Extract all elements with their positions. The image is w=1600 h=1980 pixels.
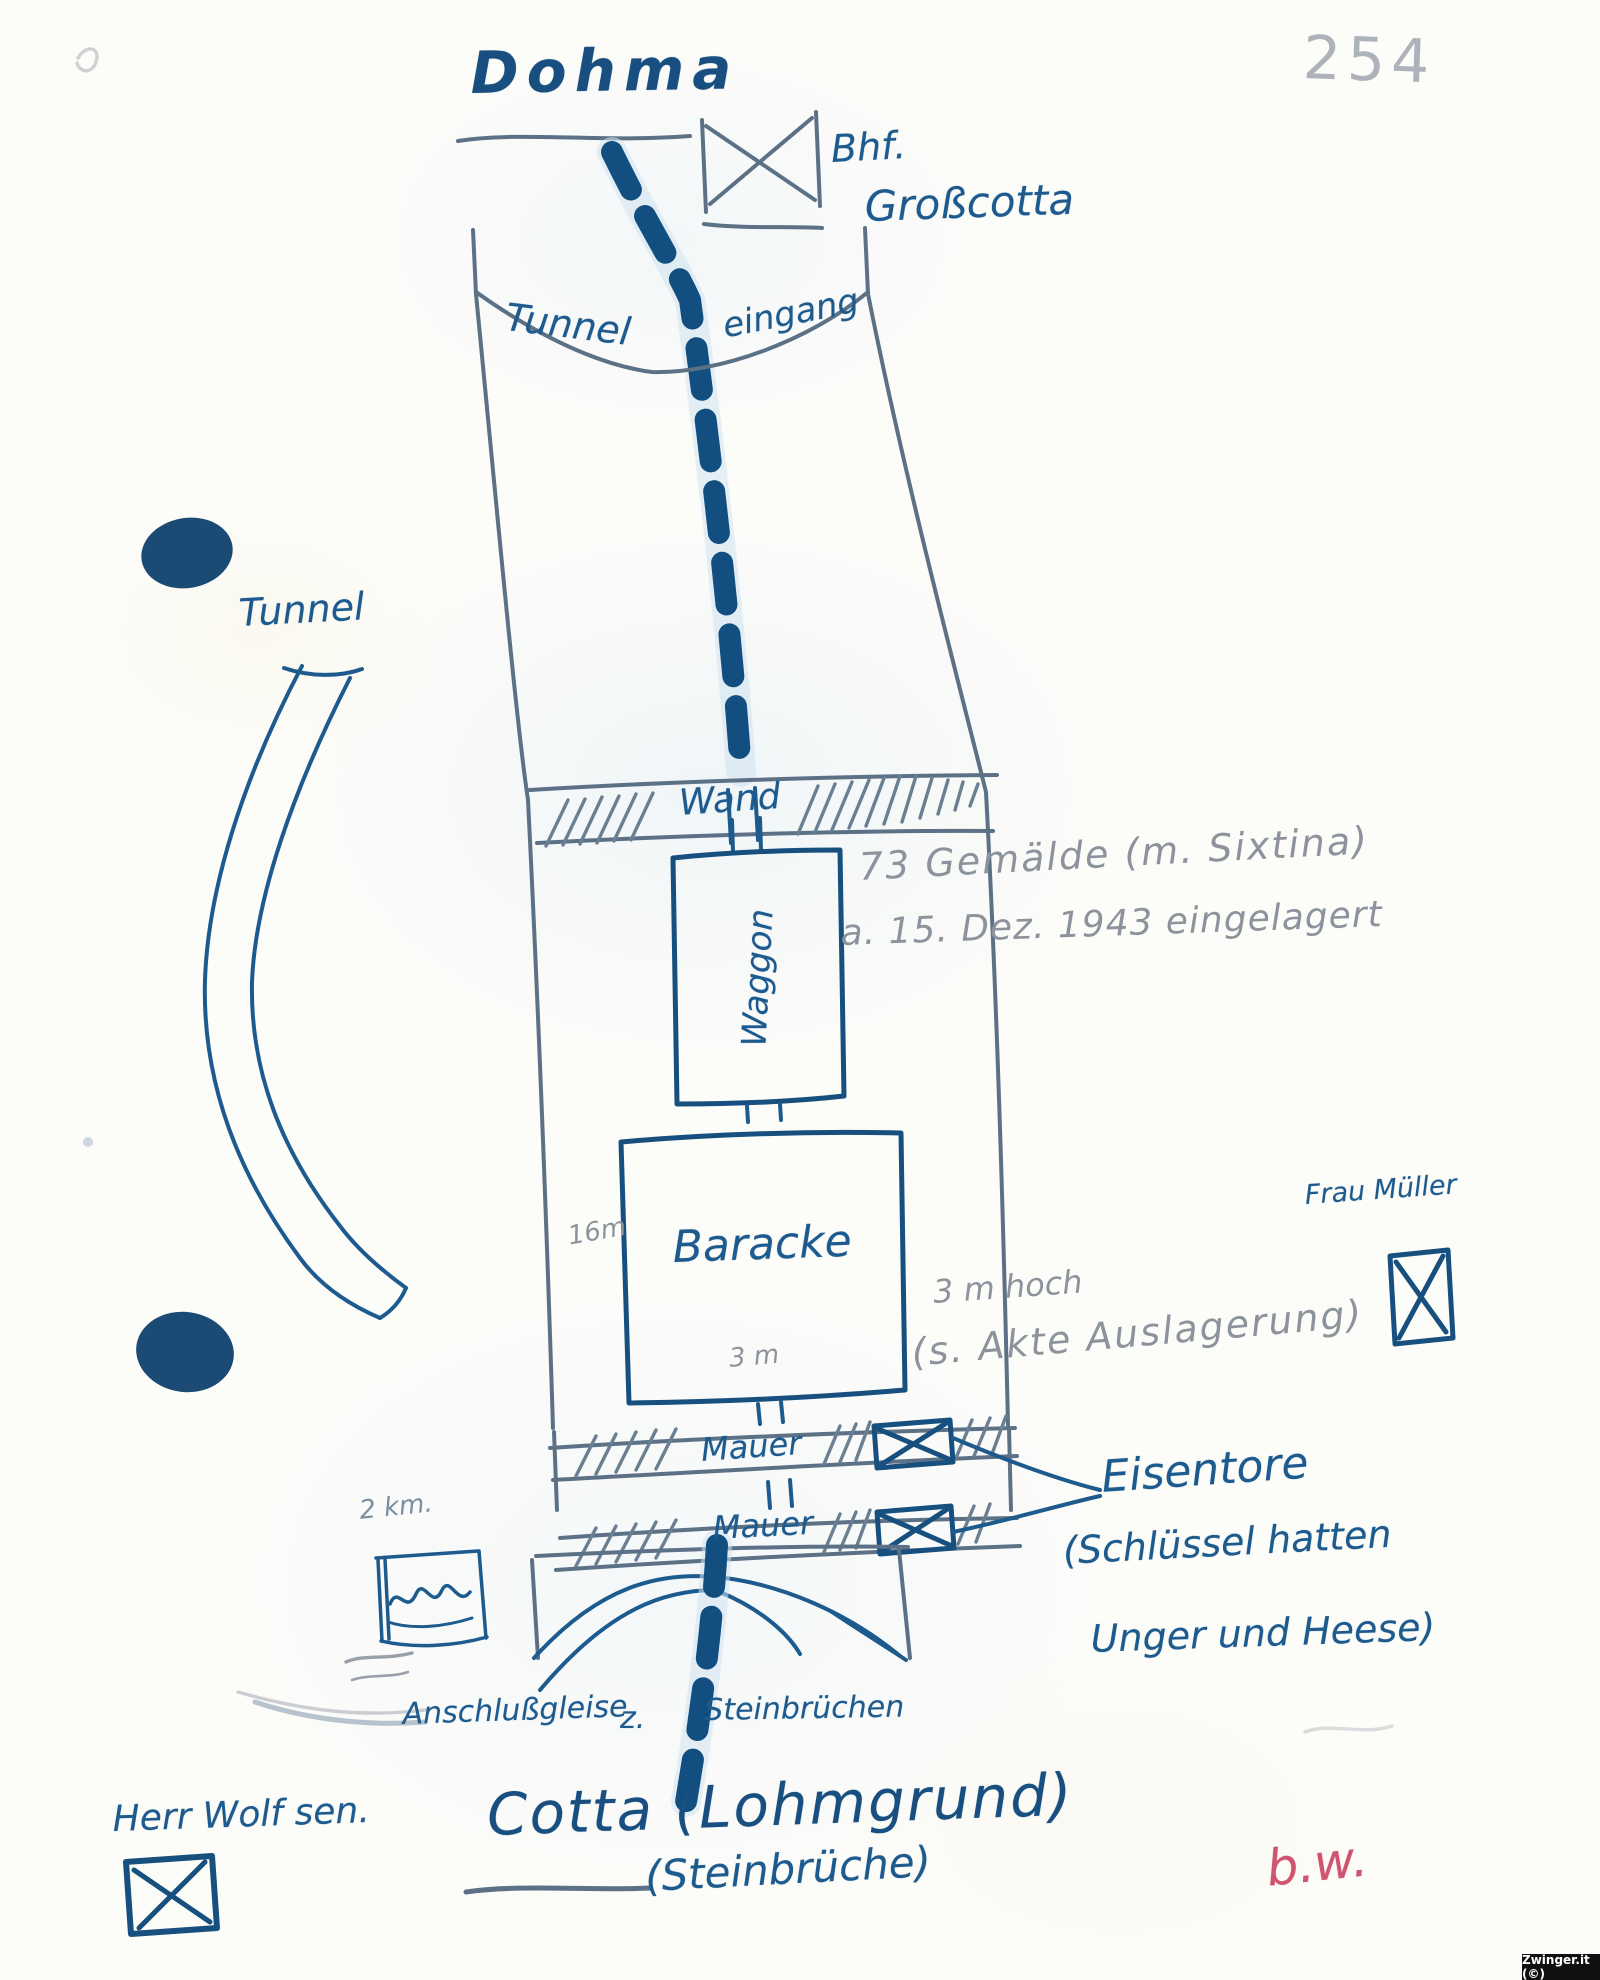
wand-label: Wand [678,779,782,822]
watermark-badge: Zwinger.it (©) [1522,1954,1600,1980]
side-tunnel-label: Tunnel [238,587,365,632]
track-between-walls [768,1480,792,1508]
scanned-sketch-page: 254 Dohma Bhf. Großcotta Tunnel eingang … [0,0,1600,1980]
mauer1-label: Mauer [700,1427,802,1466]
station-symbol-crossed-box [702,112,822,228]
title-underline [458,136,690,141]
frau-mueller-crossed-box [1390,1250,1453,1344]
gleise-label-part1: Anschlußgleise [402,1692,628,1730]
baracke-height-note-line1: 3 m hoch [932,1266,1083,1308]
gleise-label-part2: z. [620,1704,645,1734]
gleise-label-part3: Steinbrüchen [704,1693,904,1726]
mauer2-label: Mauer [712,1507,814,1544]
baracke-depth-dim: 3 m [728,1342,780,1372]
waggon-label: Waggon [737,908,778,1048]
cotta-underline [466,1888,650,1892]
reverse-side-note: b.w. [1264,1833,1370,1893]
herr-wolf-crossed-box [126,1856,217,1934]
ink-blot-bottom [131,1306,239,1399]
eisentore-label-line3: Unger und Heese) [1090,1608,1436,1658]
railway-track-top [612,152,741,772]
page-number: 254 [1302,28,1437,93]
distance-note: 2 km. [358,1490,434,1524]
map-title: Dohma [470,39,740,102]
margin-note-box [376,1551,487,1646]
baracke-box [621,1132,905,1424]
station-label-line1: Bhf. [830,126,907,168]
side-tunnel-sketch [205,646,406,1318]
herr-wolf-label: Herr Wolf sen. [112,1793,370,1838]
station-label-line2: Großcotta [864,179,1075,228]
ink-blot-top [136,511,239,596]
railway-track-bottom [686,1545,717,1802]
baracke-label: Baracke [672,1220,852,1270]
